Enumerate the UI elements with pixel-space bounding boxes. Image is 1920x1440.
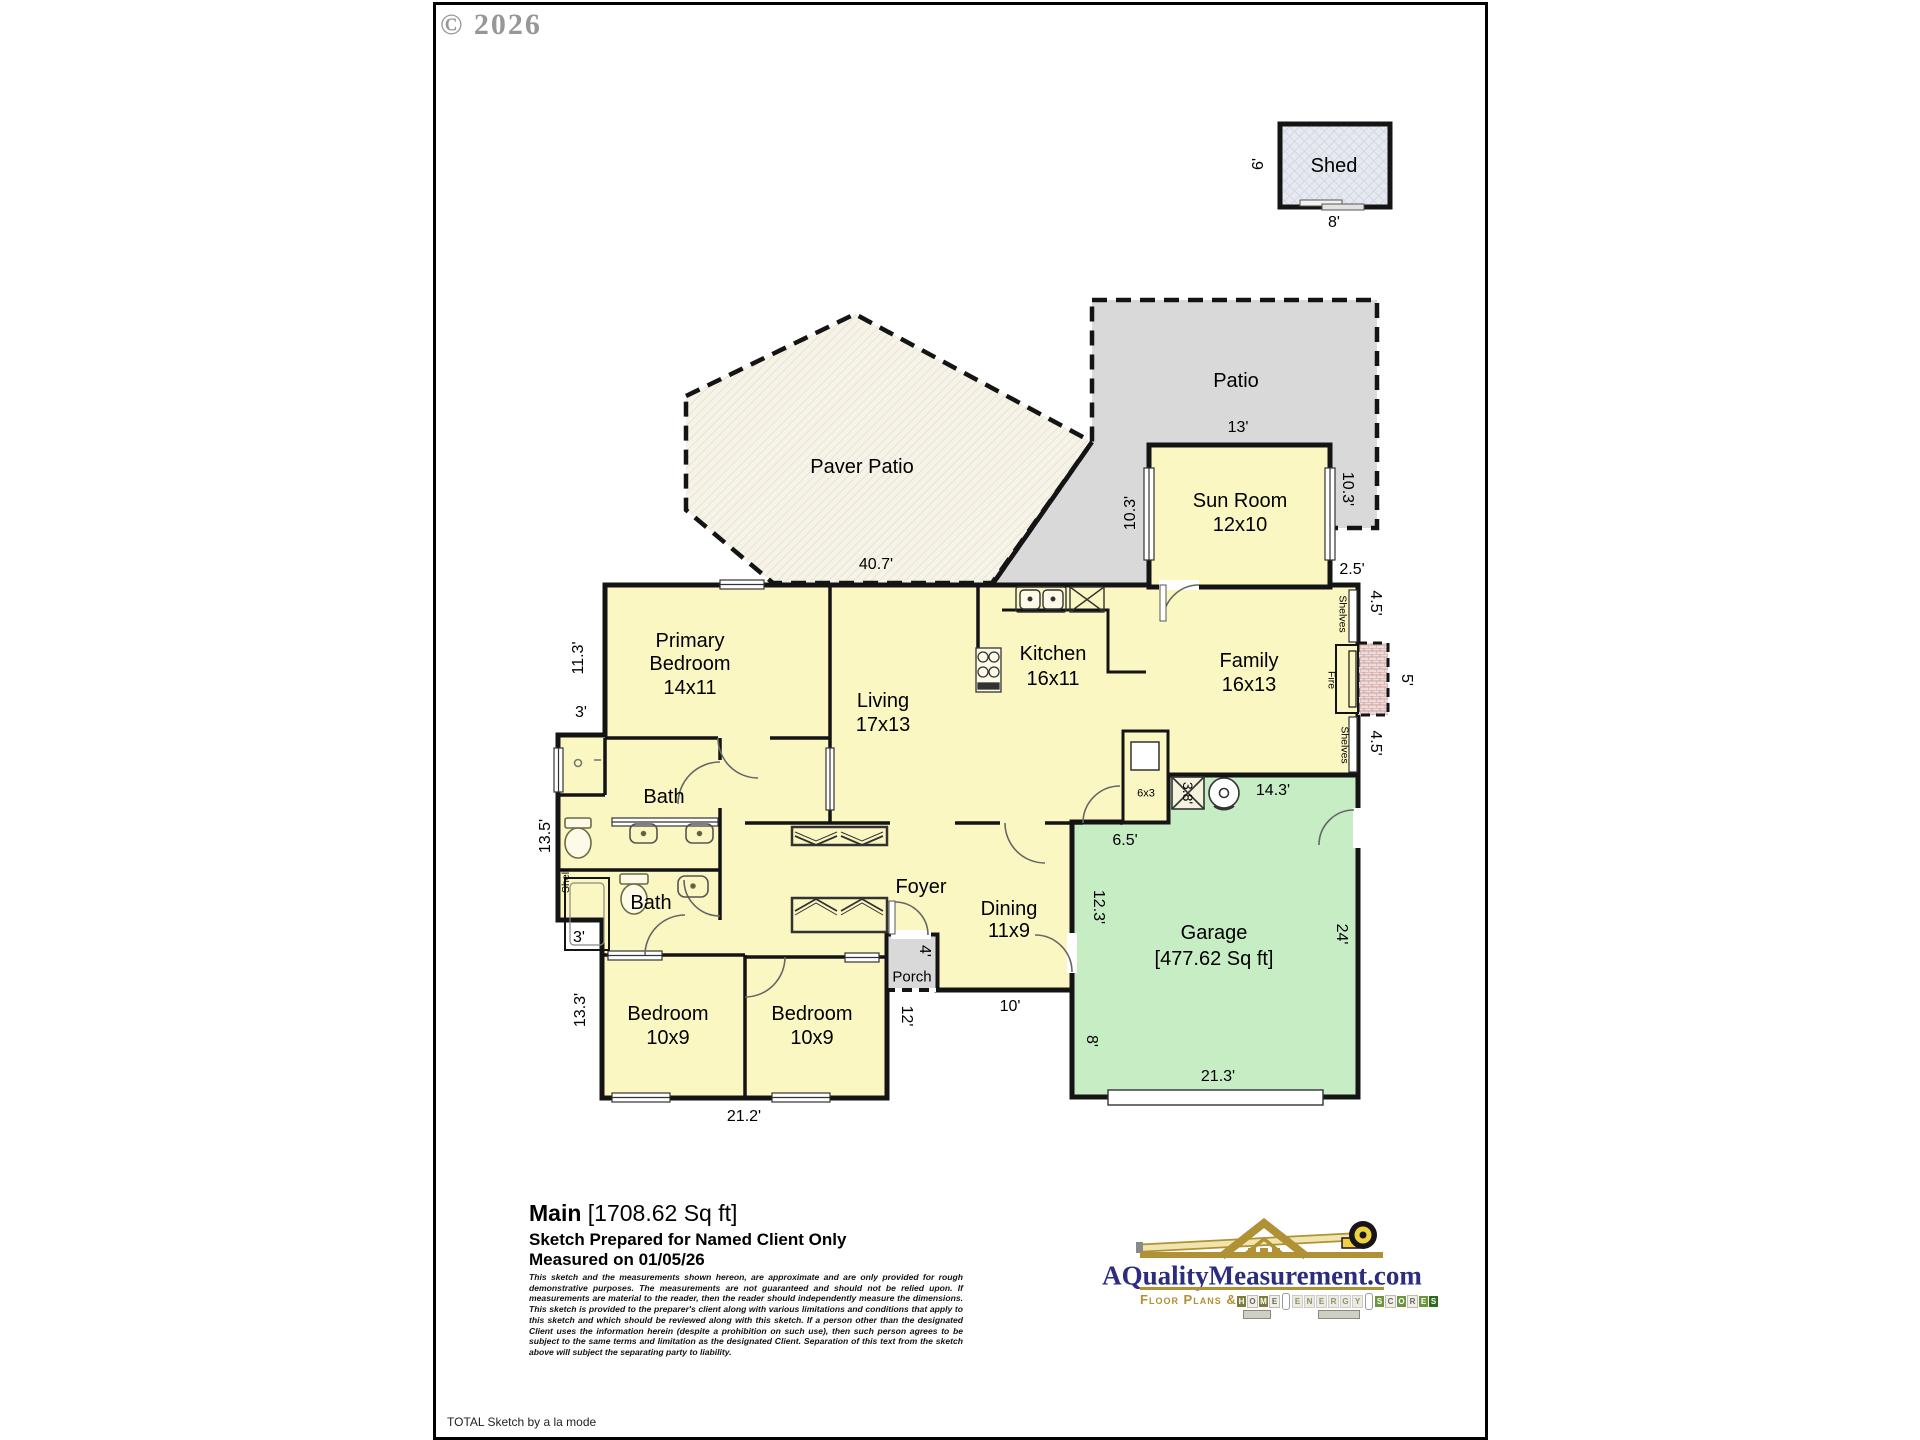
fire-label: Fire — [1326, 671, 1337, 689]
dining-size: 11x9 — [988, 921, 1030, 941]
score-letter-tile: E — [1269, 1295, 1280, 1308]
dim-11-3: 11.3' — [571, 641, 587, 674]
patio-label: Patio — [1213, 371, 1259, 391]
utility-closet-label: 6x3 — [1137, 789, 1155, 800]
score-letter-tile: S — [1375, 1296, 1384, 1307]
dim-4: 4' — [916, 945, 932, 957]
sun-room-label: Sun Room — [1193, 491, 1288, 511]
dim-24: 24' — [1333, 924, 1349, 945]
paver-patio-label: Paver Patio — [810, 457, 913, 477]
shed-label: Shed — [1311, 156, 1358, 176]
dim-13-5: 13.5' — [538, 819, 554, 853]
score-letter-tile: E — [1316, 1295, 1327, 1308]
dim-12: 12' — [898, 1006, 914, 1027]
measured-line: Measured on 01/05/26 — [529, 1250, 705, 1270]
family-size: 16x13 — [1222, 675, 1277, 695]
score-letter-tile: S — [1429, 1296, 1438, 1307]
shed-height-dim: 6' — [1251, 158, 1267, 170]
main-floor-sqft: [1708.62 Sq ft] — [588, 1200, 738, 1226]
logo-mini-badge-right — [1318, 1310, 1360, 1319]
garage-door — [1108, 1090, 1323, 1105]
thermometer-icon — [1365, 1293, 1373, 1310]
sun-room-right-dim: 10.3' — [1339, 472, 1355, 506]
dim-10: 10' — [1000, 999, 1021, 1015]
kitchen-label: Kitchen — [1020, 644, 1087, 664]
dining-label: Dining — [981, 899, 1038, 919]
dim-3-8: 3.8' — [1181, 782, 1195, 804]
bedroom2-size: 10x9 — [790, 1028, 833, 1048]
bedroom2-label: Bedroom — [771, 1004, 852, 1024]
score-letter-tile: O — [1247, 1295, 1258, 1308]
dim-12-3: 12.3' — [1090, 890, 1106, 924]
primary-bedroom-label-2: Bedroom — [649, 654, 730, 674]
score-letter-tile: E — [1419, 1296, 1428, 1307]
fireplace — [1336, 643, 1388, 715]
dim-14-3: 14.3' — [1256, 783, 1290, 799]
score-letter-tile: M — [1259, 1296, 1268, 1307]
dim-21-3: 21.3' — [1201, 1069, 1235, 1085]
dim-4-5-top: 4.5' — [1367, 590, 1383, 615]
sun-room-size: 12x10 — [1213, 515, 1268, 535]
family-label: Family — [1220, 651, 1279, 671]
logo-divider — [1140, 1287, 1384, 1290]
dim-3-a: 3' — [575, 705, 587, 721]
score-letter-tile: R — [1407, 1295, 1418, 1308]
main-summary: Main [1708.62 Sq ft] — [529, 1200, 737, 1227]
kitchen-size: 16x11 — [1026, 669, 1079, 689]
logo-tagline: Floor Plans & — [1140, 1292, 1237, 1307]
sun-room-left-dim: 10.3' — [1123, 496, 1139, 530]
score-letter-tile: E — [1292, 1295, 1303, 1308]
utility-closet — [1123, 731, 1168, 822]
logo-mini-badge-left — [1243, 1310, 1271, 1319]
main-floor-label: Main — [529, 1200, 581, 1226]
floor-plan-page: © 2026 — [0, 0, 1920, 1440]
bedroom1-label: Bedroom — [627, 1004, 708, 1024]
living-label: Living — [857, 691, 909, 711]
bedroom1-size: 10x9 — [646, 1028, 689, 1048]
dim-8: 8' — [1083, 1035, 1099, 1047]
dim-13-3: 13.3' — [573, 993, 589, 1027]
primary-bedroom-size: 14x11 — [663, 678, 716, 698]
water-heater-icon — [1209, 778, 1239, 810]
stove-icon — [976, 648, 1001, 692]
dim-21-2: 21.2' — [727, 1109, 761, 1125]
dim-5: 5' — [1398, 674, 1414, 686]
jog-dim: 2.5' — [1339, 562, 1364, 578]
score-letter-tile: N — [1304, 1295, 1315, 1308]
score-letter-tile: Y — [1352, 1295, 1363, 1308]
living-size: 17x13 — [856, 715, 911, 735]
paver-patio-dim: 40.7' — [859, 557, 893, 573]
shelves-bottom-label: Shelves — [1339, 726, 1350, 763]
garage-label: Garage — [1181, 923, 1248, 943]
bath1-label: Bath — [643, 787, 684, 807]
shelves-top-label: Shelves — [1337, 595, 1348, 632]
score-letter-tile: H — [1237, 1296, 1246, 1307]
software-credit: TOTAL Sketch by a la mode — [447, 1415, 596, 1429]
score-letter-tile: C — [1385, 1295, 1396, 1308]
primary-bedroom-label-1: Primary — [656, 631, 725, 651]
prepared-line: Sketch Prepared for Named Client Only — [529, 1230, 846, 1250]
thermometer-icon — [1282, 1293, 1290, 1310]
dim-4-5-bottom: 4.5' — [1367, 730, 1383, 755]
floor-plan-drawing — [0, 0, 1920, 1440]
foyer-label: Foyer — [895, 877, 946, 897]
score-letter-tile: G — [1340, 1295, 1351, 1308]
dim-3-b: 3' — [573, 930, 585, 946]
logo-energy-score-tiles: HOMEENERGYSCORES — [1237, 1293, 1438, 1310]
score-letter-tile: O — [1397, 1296, 1406, 1307]
disclaimer-text: This sketch and the measurements shown h… — [529, 1272, 963, 1358]
garage-size: [477.62 Sq ft] — [1155, 949, 1274, 969]
dim-6-5: 6.5' — [1112, 833, 1137, 849]
bath2-label: Bath — [630, 893, 671, 913]
shed-width-dim: 8' — [1328, 215, 1340, 231]
patio-dim: 13' — [1228, 420, 1249, 436]
score-letter-tile: R — [1328, 1295, 1339, 1308]
porch-label: Porch — [892, 970, 931, 985]
shelf-label: Shelf — [561, 869, 572, 893]
